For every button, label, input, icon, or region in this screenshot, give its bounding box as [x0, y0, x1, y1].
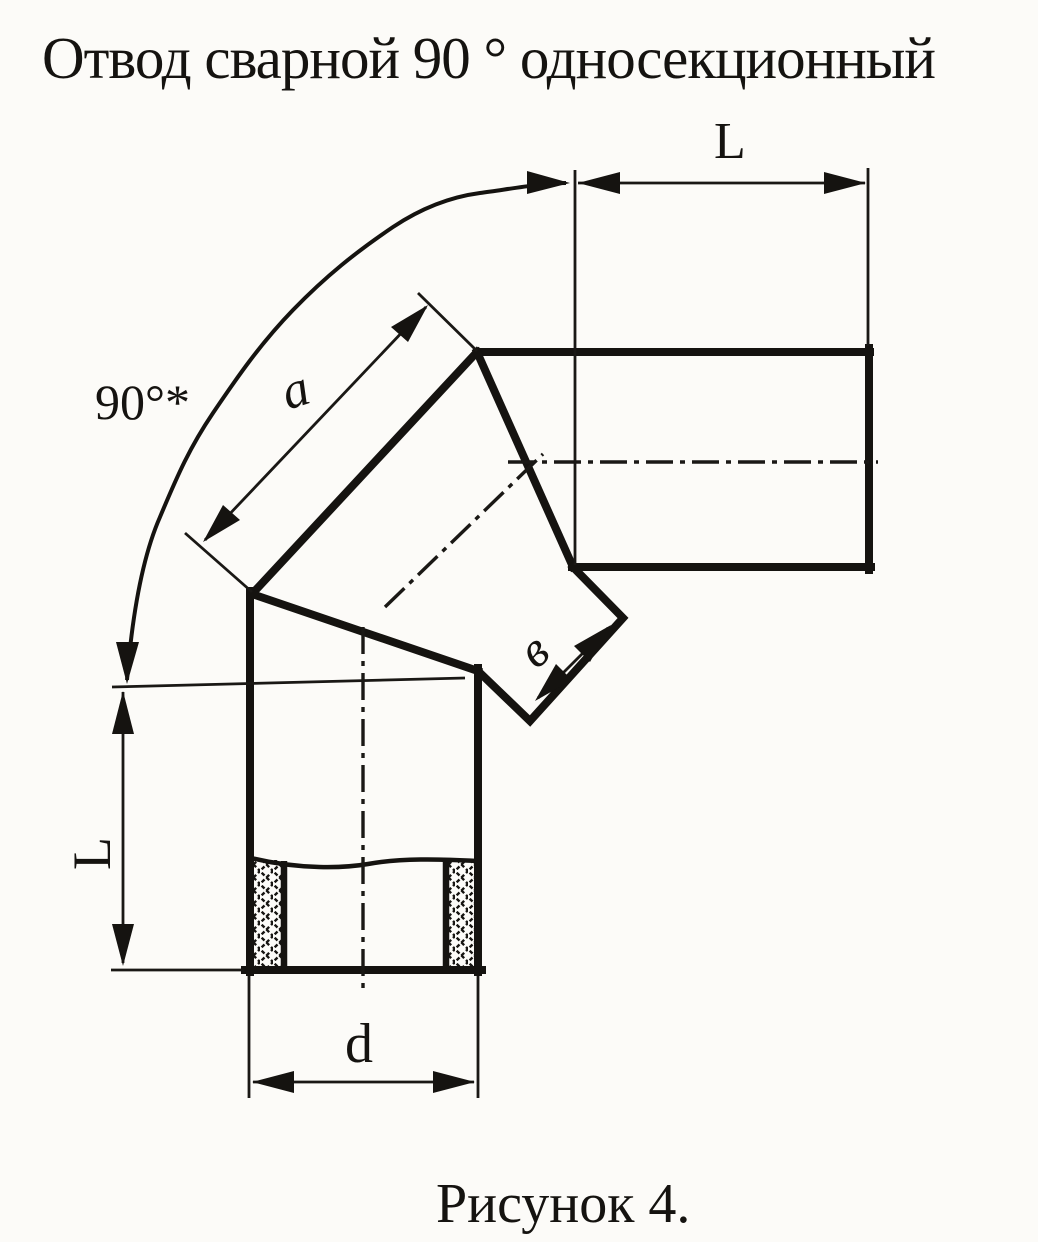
label-segment-a: a [274, 359, 316, 421]
label-length-top: L [714, 113, 746, 170]
figure-caption: Рисунок 4. [436, 1172, 690, 1236]
hatched-wall-left [254, 860, 281, 968]
extension-lines [111, 168, 868, 1098]
label-length-left: L [62, 837, 122, 870]
arc-arrowhead-bottom [116, 642, 139, 684]
horizontal-pipe-outline [477, 348, 871, 570]
arrowhead [824, 172, 866, 194]
hatched-wall-right [449, 860, 475, 968]
arrowhead [433, 1071, 475, 1093]
weld-seam-upper [477, 352, 573, 567]
arrowhead [112, 691, 134, 734]
elbow-technical-drawing: L L a в d 90° [0, 0, 1038, 1242]
dimension-a: a [203, 305, 428, 542]
label-face-width: в [507, 622, 560, 679]
centerlines [363, 454, 878, 993]
dimension-top-L: L [578, 113, 866, 194]
weld-seam-lower [252, 594, 478, 671]
label-angle: 90°* [95, 374, 190, 430]
arrowhead [112, 924, 134, 966]
dimension-d: d [252, 1013, 475, 1093]
centerline-diagonal [385, 454, 543, 607]
dimension-left-L: L [62, 691, 134, 966]
miter-face-edges [477, 567, 623, 721]
arrowhead [578, 172, 620, 194]
arrowhead [252, 1071, 294, 1093]
arc-arrowhead-top [527, 171, 570, 194]
scanned-drawing-page: Отвод сварной 90 ° односекционный [0, 0, 1038, 1242]
label-diameter: d [345, 1013, 373, 1075]
